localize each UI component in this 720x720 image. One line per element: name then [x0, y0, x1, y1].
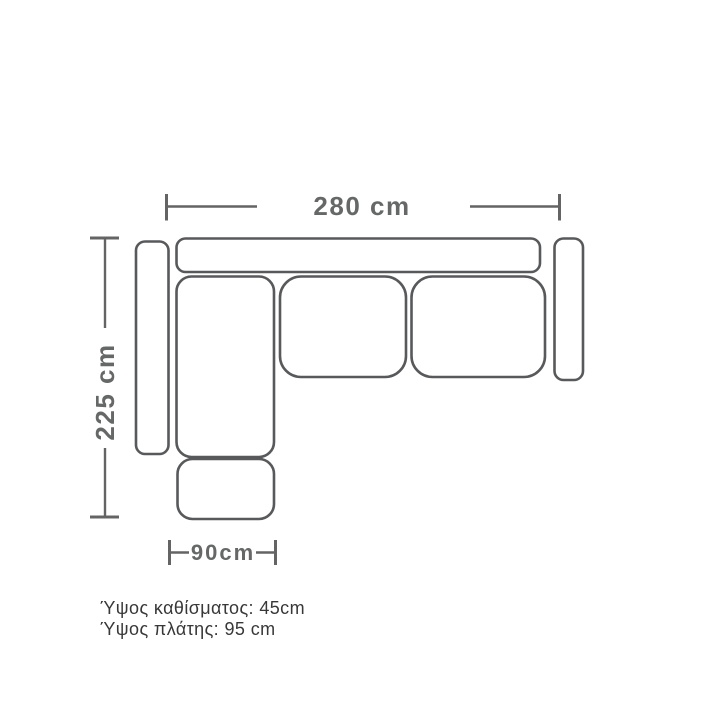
note-back-height: Ύψος πλάτης: 95 cm [100, 619, 305, 640]
left-armrest-outline [136, 242, 169, 455]
middle-seat-cushion-outline [280, 277, 406, 378]
chaise-width-dimension-label: 90cm [173, 541, 273, 564]
sofa-dimension-diagram: 280 cm 225 cm 90cm Ύψος καθίσματος: 45cm… [0, 0, 720, 720]
note-seat-height: Ύψος καθίσματος: 45cm [100, 598, 305, 619]
sofa-outlines [136, 239, 583, 520]
right-seat-cushion-outline [412, 277, 546, 378]
ottoman-outline [178, 459, 275, 519]
depth-dimension-label: 225 cm [92, 332, 118, 452]
width-dimension-label: 280 cm [310, 193, 414, 219]
backrest-outline [177, 239, 541, 273]
height-notes: Ύψος καθίσματος: 45cm Ύψος πλάτης: 95 cm [100, 598, 305, 640]
right-armrest-outline [555, 239, 584, 381]
chaise-seat-outline [177, 277, 275, 458]
